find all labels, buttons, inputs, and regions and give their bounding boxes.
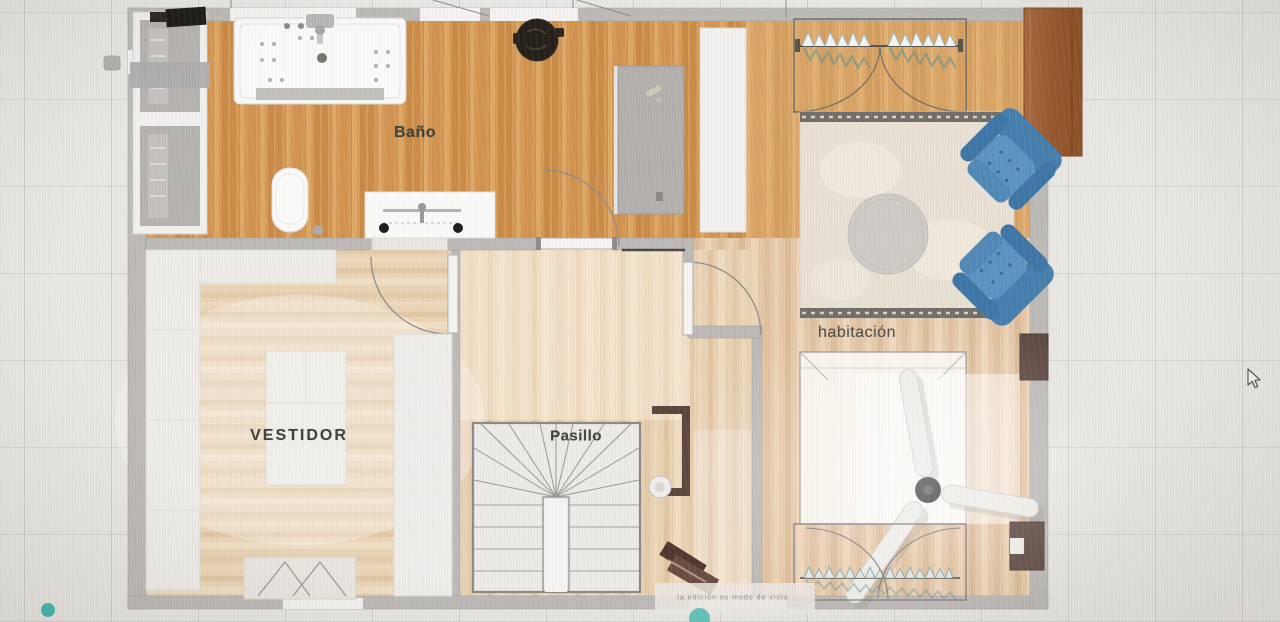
wall-bano-south-1 <box>146 238 371 250</box>
shelf-unit[interactable] <box>130 7 210 234</box>
wall-bano-south-3 <box>613 238 693 250</box>
teal-logo-icon <box>689 608 710 622</box>
nightstand-1[interactable] <box>1020 334 1048 380</box>
staircase[interactable] <box>473 423 640 592</box>
shelf-decor-dark-2 <box>150 12 166 22</box>
teal-dot-icon <box>41 603 55 617</box>
vanity-knob-left <box>379 223 389 233</box>
watermark-caption: la edición su modo de vista <box>677 595 788 602</box>
dresser-bottom[interactable] <box>244 557 356 599</box>
shower[interactable] <box>614 66 684 214</box>
window-bottom-1 <box>283 598 363 609</box>
floor-plan-canvas[interactable] <box>0 0 1280 622</box>
shelf-decor-dark <box>165 7 206 28</box>
island-dresser[interactable] <box>266 351 346 485</box>
wall-hab-entry <box>688 326 762 338</box>
vanity-knob-right <box>453 223 463 233</box>
wall-pasillo-habitacion <box>752 338 762 596</box>
window-top-2 <box>420 8 480 21</box>
hall-closet[interactable] <box>394 334 452 596</box>
nightstand-2[interactable] <box>1010 522 1044 570</box>
exterior-fixture <box>104 56 120 70</box>
toilet[interactable] <box>272 168 308 232</box>
app-viewport[interactable]: Baño habitación VESTIDOR Pasillo la edic… <box>0 0 1280 622</box>
floor-drain <box>313 225 323 235</box>
wall-bano-south-2 <box>448 238 540 250</box>
wardrobe-panel-white[interactable] <box>700 28 746 232</box>
round-table[interactable] <box>848 194 928 274</box>
bathtub[interactable] <box>234 14 406 104</box>
vanity-sink[interactable] <box>365 192 495 238</box>
